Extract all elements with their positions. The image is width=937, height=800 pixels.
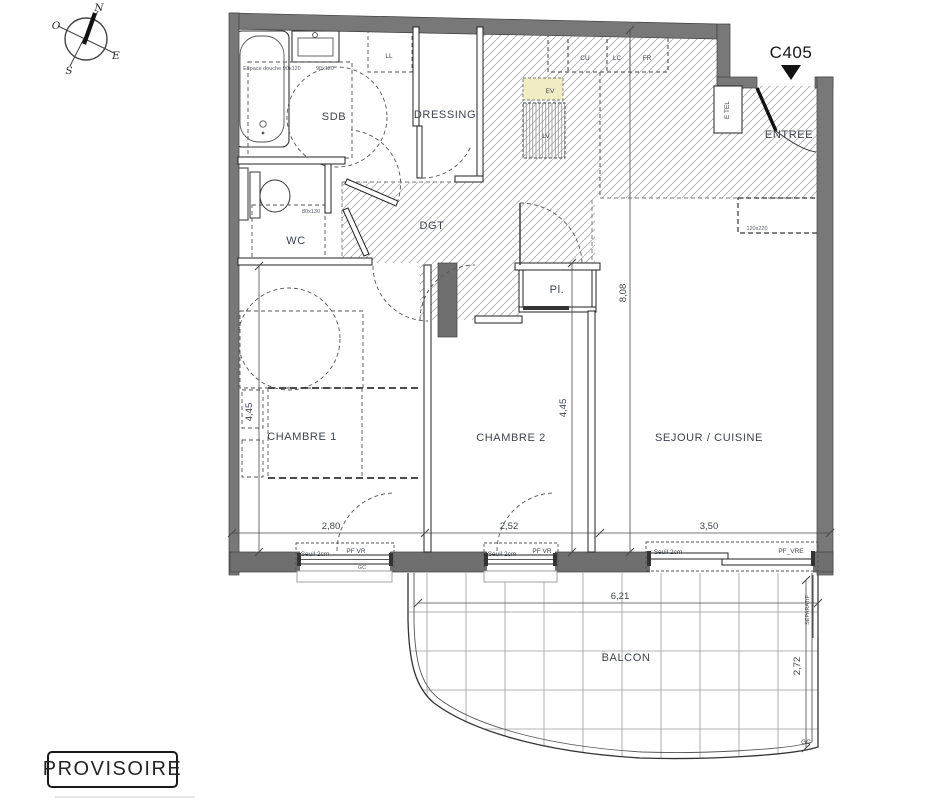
label-sdb: SDB — [322, 111, 346, 123]
label-dgt: DGT — [419, 220, 444, 232]
wall-stub — [438, 263, 457, 337]
kitchen-sink — [523, 78, 563, 100]
label-cu: CU — [580, 55, 590, 62]
label-seuil-ch2: Seuil 2cm — [488, 551, 517, 558]
dim-sejour-width: 3,50 — [700, 521, 719, 532]
dim-sejour-height: 8,08 — [618, 284, 629, 303]
label-seuil-ch1: Seuil 2cm — [301, 551, 330, 558]
dim-chambre2-height: 4,45 — [558, 399, 569, 418]
label-gc-balcon: GC — [801, 739, 811, 746]
label-wc-dim: 80x130 — [302, 209, 320, 215]
turning-circle-chambre1 — [238, 288, 340, 390]
label-sejour-niche-dim: 120x220 — [746, 226, 767, 232]
label-pfvre-sejour: PF_VRE — [778, 548, 804, 555]
entry-marker-triangle — [781, 65, 801, 80]
dim-balcon-width: 6,21 — [611, 591, 630, 602]
label-dressing: DRESSING — [414, 109, 476, 121]
compass-east: E — [111, 50, 120, 62]
label-chambre1: CHAMBRE 1 — [267, 431, 337, 443]
washing-machine — [368, 31, 412, 72]
furniture-chambre1 — [240, 311, 418, 478]
shower-zone — [248, 62, 352, 158]
wardrobe — [240, 311, 363, 388]
wall-top — [230, 13, 717, 39]
nightstand — [242, 440, 263, 477]
label-pfvr-ch2: PF VR — [532, 548, 551, 555]
provisoire-stamp: PROVISOIRE — [47, 751, 178, 788]
placard-sliding-door — [523, 306, 569, 310]
label-entree: ENTREE — [765, 129, 813, 141]
dim-chambre2-width: 2,52 — [500, 521, 519, 532]
provisoire-stamp-text: PROVISOIRE — [43, 758, 182, 781]
label-ll: LL — [385, 53, 393, 60]
label-seuil-sejour: Seuil 2cm — [654, 549, 683, 556]
label-placard: Pl. — [550, 284, 565, 296]
label-douche-dim: 90x120 — [316, 66, 334, 72]
label-sejour: SEJOUR / CUISINE — [655, 432, 763, 444]
dim-balcon-height: 2,72 — [792, 657, 803, 676]
floor-plan-page: SDB DRESSING WC DGT ENTREE Pl. CHAMBRE 1… — [0, 0, 937, 800]
compass-north: N — [93, 2, 104, 14]
label-lv: LV — [542, 133, 550, 140]
label-ev: EV — [546, 88, 555, 95]
bathtub — [235, 31, 289, 147]
label-fr: FR — [643, 55, 652, 62]
wall-left — [229, 13, 239, 575]
label-wc: WC — [286, 235, 306, 247]
unit-code-text: C405 — [770, 43, 813, 62]
label-lc: LC — [613, 55, 622, 62]
label-etel: E TEL — [724, 101, 731, 119]
label-espace-douche: Espace douche 90x120 — [243, 66, 301, 72]
dim-chambre1-height: 4,45 — [244, 403, 255, 422]
wall-right — [817, 77, 833, 575]
compass-south: S — [65, 65, 72, 77]
label-separatif: SEPARATIF — [805, 594, 811, 624]
washbasin — [292, 31, 339, 62]
dishwasher — [523, 103, 565, 158]
compass-rose: N O E S — [52, 2, 120, 77]
dim-chambre1-width: 2,80 — [322, 521, 341, 532]
label-gc-window: GC — [358, 565, 366, 571]
floor-plan-drawing: SDB DRESSING WC DGT ENTREE Pl. CHAMBRE 1… — [0, 0, 937, 800]
label-balcon: BALCON — [602, 652, 651, 664]
label-pfvr-ch1: PF VR — [346, 548, 365, 555]
toilet-tank — [250, 172, 260, 218]
unit-code: C405 — [770, 43, 813, 80]
toilet-bowl — [260, 180, 290, 212]
label-chambre2: CHAMBRE 2 — [476, 432, 546, 444]
compass-west: O — [52, 20, 61, 32]
